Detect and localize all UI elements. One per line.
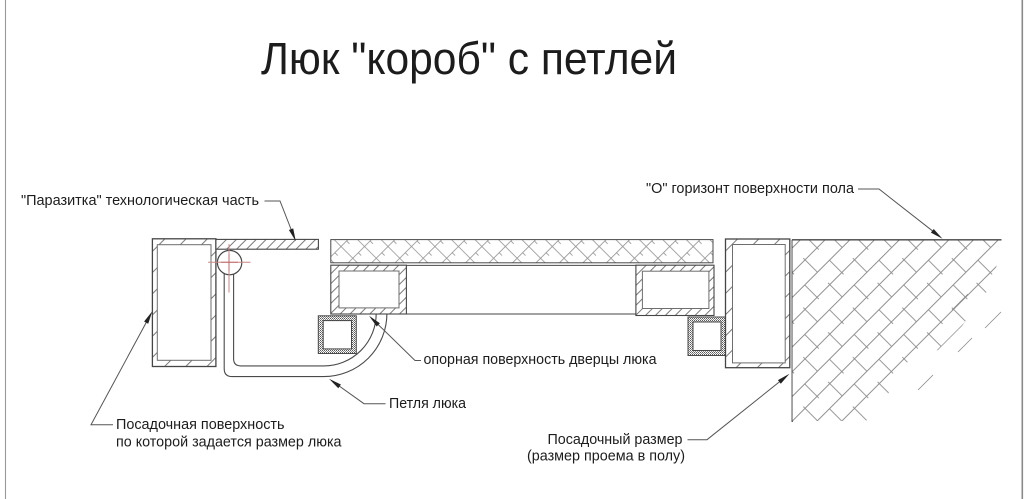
svg-text:по которой задается размер люк: по которой задается размер люка [116, 434, 342, 451]
svg-text:Петля люка: Петля люка [389, 395, 467, 412]
svg-text:Посадочная поверхность: Посадочная поверхность [116, 416, 285, 433]
svg-text:опорная поверхность дверцы люк: опорная поверхность дверцы люка [424, 351, 658, 368]
svg-text:"О" горизонт поверхности пола: "О" горизонт поверхности пола [646, 180, 855, 197]
svg-text:"Паразитка" технологическая ча: "Паразитка" технологическая часть [21, 192, 259, 209]
svg-text:Люк "короб" с петлей: Люк "короб" с петлей [261, 33, 677, 84]
svg-text:Посадочный размер: Посадочный размер [548, 431, 683, 448]
svg-text:(размер проема в полу): (размер проема в полу) [527, 448, 685, 465]
